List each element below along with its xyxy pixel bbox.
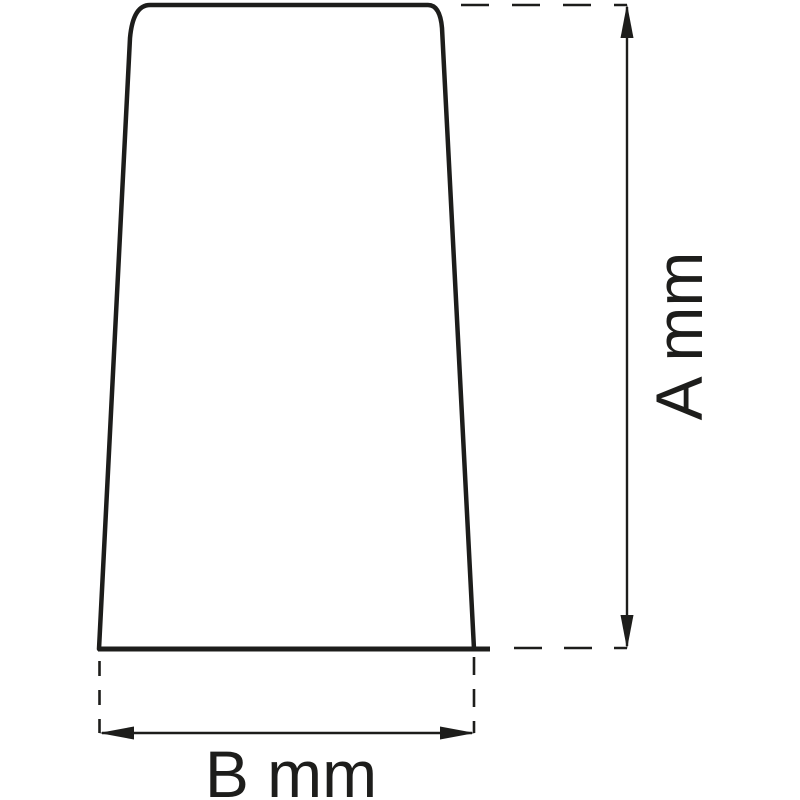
height-dimension-label: A mm	[642, 252, 716, 421]
technical-drawing-canvas: A mm B mm	[0, 0, 800, 800]
profile-shape	[98, 5, 490, 649]
extension-lines	[100, 5, 628, 733]
arrow-up-icon	[621, 4, 634, 38]
dimension-diagram: A mm B mm	[0, 0, 800, 800]
arrow-left-icon	[99, 727, 134, 740]
profile-outline	[99, 5, 474, 649]
arrow-right-icon	[440, 727, 475, 740]
arrow-down-icon	[621, 615, 634, 649]
width-dimension: B mm	[99, 727, 475, 800]
width-dimension-label: B mm	[205, 737, 377, 800]
height-dimension: A mm	[621, 4, 717, 649]
